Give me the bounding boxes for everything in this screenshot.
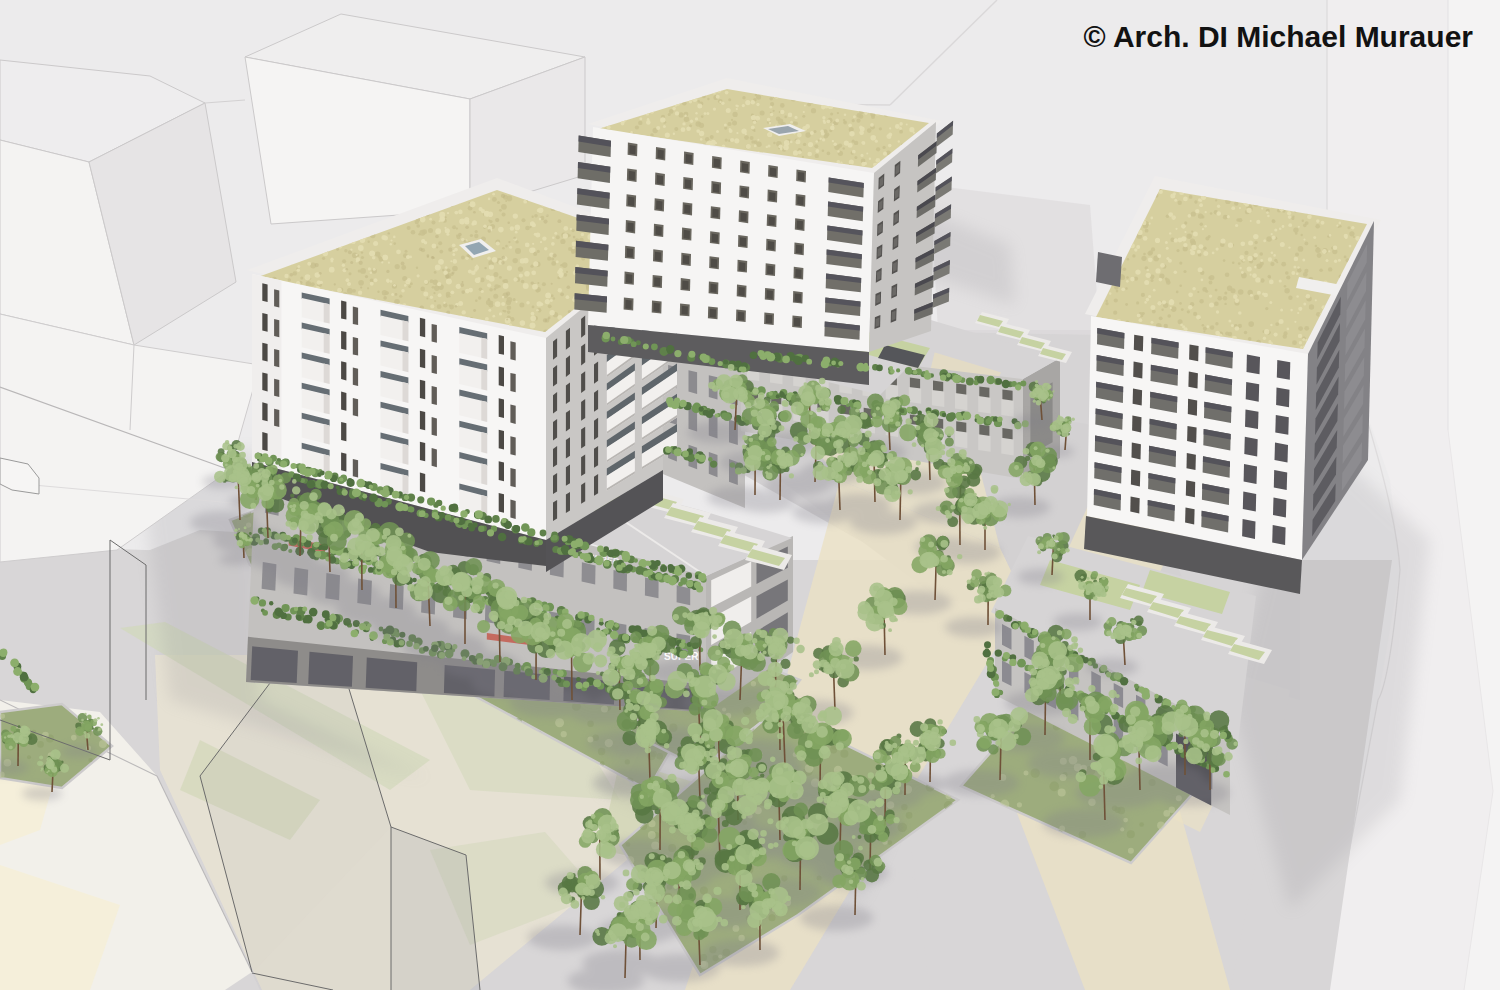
svg-text:© Arch. DI Michael Murauer: © Arch. DI Michael Murauer	[1084, 20, 1474, 53]
